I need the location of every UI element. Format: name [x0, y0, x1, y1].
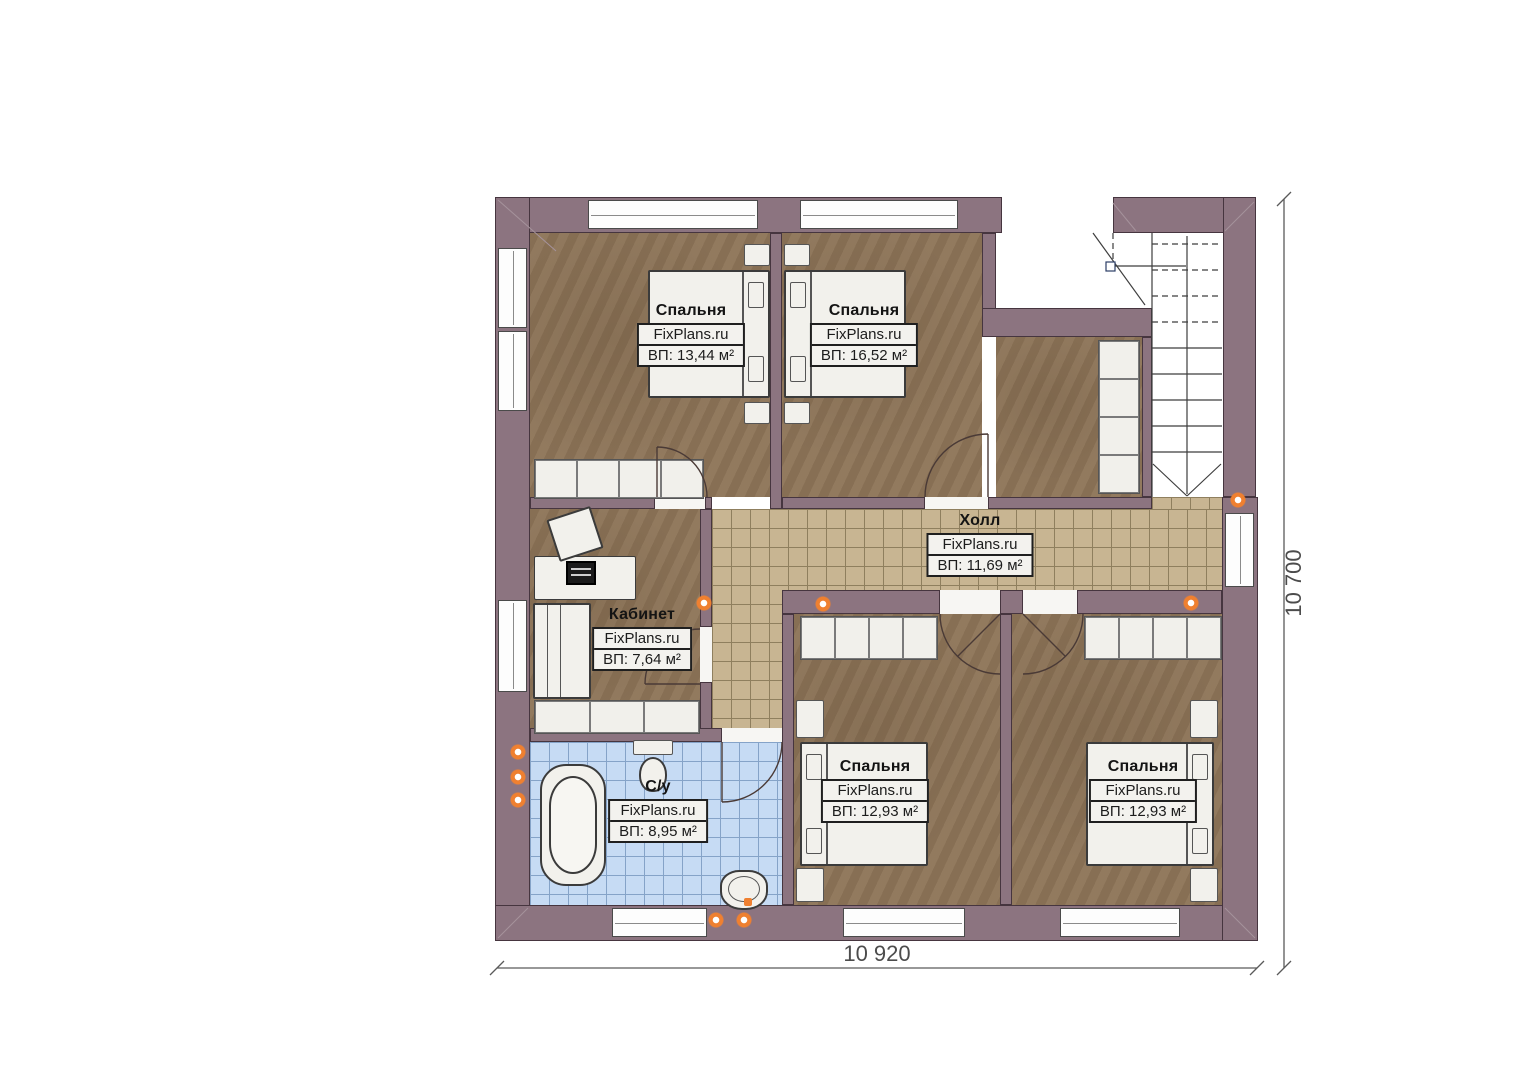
area-label: ВП: 8,95 м²	[610, 822, 706, 841]
bathtub-icon	[540, 764, 606, 886]
brand-label: FixPlans.ru	[812, 325, 916, 346]
window-left-bedroom1-a	[498, 248, 527, 328]
window-bottom-bathroom	[612, 908, 707, 937]
wall-right-stairwell	[1223, 197, 1256, 497]
nightstand	[1190, 700, 1218, 738]
service-point-icon	[744, 898, 752, 906]
wall-light-icon	[1230, 492, 1246, 508]
room-info-box: FixPlans.ru ВП: 12,93 м²	[1089, 779, 1197, 823]
pillow-icon	[748, 356, 764, 382]
shelf-office	[534, 700, 700, 734]
wall-stair-void-south	[982, 308, 1152, 337]
pillow-icon	[748, 282, 764, 308]
wall-hall-bedrooms-a	[782, 590, 940, 614]
area-label: ВП: 13,44 м²	[639, 346, 743, 365]
wall-bedroom2-south-b	[988, 497, 1152, 509]
brand-label: FixPlans.ru	[1091, 781, 1195, 802]
room-label-bedroom-bottom-left: Спальня FixPlans.ru ВП: 12,93 м²	[821, 758, 929, 823]
room-name: Кабинет	[592, 606, 692, 624]
room-label-office: Кабинет FixPlans.ru ВП: 7,64 м²	[592, 606, 692, 671]
room-info-box: FixPlans.ru ВП: 7,64 м²	[592, 627, 692, 671]
brand-label: FixPlans.ru	[594, 629, 690, 650]
wall-light-icon	[708, 912, 724, 928]
dimension-width-label: 10 920	[843, 941, 910, 967]
window-top-bedroom1	[588, 200, 758, 229]
door-opening-office	[700, 627, 712, 682]
wardrobe-bedroom2	[1098, 340, 1140, 494]
wall-bedroom1-south-b	[705, 497, 712, 509]
nightstand	[796, 868, 824, 902]
area-label: ВП: 7,64 м²	[594, 650, 690, 669]
wall-light-icon	[815, 596, 831, 612]
room-label-bedroom-top-right: Спальня FixPlans.ru ВП: 16,52 м²	[810, 302, 918, 367]
room-label-bedroom-bottom-right: Спальня FixPlans.ru ВП: 12,93 м²	[1089, 758, 1197, 823]
nightstand	[744, 402, 770, 424]
room-name: Спальня	[637, 302, 745, 320]
room-info-box: FixPlans.ru ВП: 11,69 м²	[926, 533, 1033, 577]
brand-label: FixPlans.ru	[823, 781, 927, 802]
floor-plan-canvas: Спальня FixPlans.ru ВП: 13,44 м² Спальня…	[0, 0, 1528, 1080]
floor-hall-stair-landing	[1152, 497, 1222, 509]
wall-light-icon	[510, 769, 526, 785]
computer-icon	[566, 561, 596, 585]
wall-extension-stair	[1142, 337, 1152, 497]
bathtub-basin	[549, 776, 597, 874]
wall-light-icon	[1183, 595, 1199, 611]
sofa-line	[560, 605, 561, 697]
wall-between-top-bedrooms	[770, 233, 782, 509]
room-name: Спальня	[821, 758, 929, 776]
nightstand	[796, 700, 824, 738]
room-info-box: FixPlans.ru ВП: 8,95 м²	[608, 799, 708, 843]
wall-between-bottom-bedrooms	[1000, 614, 1012, 905]
nightstand	[784, 402, 810, 424]
wall-light-icon	[696, 595, 712, 611]
pillow-icon	[1192, 828, 1208, 854]
wall-light-icon	[736, 912, 752, 928]
window-bottom-bedroom3	[843, 908, 965, 937]
room-label-bathroom: С/у FixPlans.ru ВП: 8,95 м²	[608, 778, 708, 843]
area-label: ВП: 11,69 м²	[928, 556, 1031, 575]
nightstand	[784, 244, 810, 266]
nightstand	[1190, 868, 1218, 902]
area-label: ВП: 12,93 м²	[823, 802, 927, 821]
pillow-icon	[790, 282, 806, 308]
door-opening-bedroom2	[925, 497, 988, 509]
wall-bedroom3-west	[782, 614, 794, 905]
pillow-icon	[806, 828, 822, 854]
pillow-icon	[790, 356, 806, 382]
room-name: Холл	[926, 512, 1033, 530]
wall-light-icon	[510, 792, 526, 808]
wardrobe-bedroom1	[534, 459, 704, 499]
area-label: ВП: 12,93 м²	[1091, 802, 1195, 821]
door-opening-bedroom4	[1023, 590, 1077, 614]
window-left-office	[498, 600, 527, 692]
wall-hall-bedrooms-c	[1077, 590, 1222, 614]
wall-light-icon	[510, 744, 526, 760]
room-name: Спальня	[810, 302, 918, 320]
brand-label: FixPlans.ru	[639, 325, 743, 346]
room-info-box: FixPlans.ru ВП: 13,44 м²	[637, 323, 745, 367]
window-left-bedroom1-b	[498, 331, 527, 411]
room-name: Спальня	[1089, 758, 1197, 776]
window-bottom-bedroom4	[1060, 908, 1180, 937]
nightstand	[744, 244, 770, 266]
room-info-box: FixPlans.ru ВП: 12,93 м²	[821, 779, 929, 823]
window-top-bedroom2	[800, 200, 958, 229]
brand-label: FixPlans.ru	[928, 535, 1031, 556]
brand-label: FixPlans.ru	[610, 801, 706, 822]
door-opening-bathroom	[722, 728, 782, 742]
room-name: С/у	[608, 778, 708, 796]
wardrobe-bedroom3	[800, 616, 938, 660]
door-opening-bedroom3	[940, 590, 1000, 614]
room-label-hall: Холл FixPlans.ru ВП: 11,69 м²	[926, 512, 1033, 577]
wall-bedroom2-south-a	[782, 497, 925, 509]
pillow-icon	[806, 754, 822, 780]
wardrobe-bedroom4	[1084, 616, 1222, 660]
area-label: ВП: 16,52 м²	[812, 346, 916, 365]
window-right-hall	[1225, 513, 1254, 587]
sofa-office	[533, 603, 591, 699]
floor-hall-corridor	[712, 509, 790, 742]
room-info-box: FixPlans.ru ВП: 16,52 м²	[810, 323, 918, 367]
wall-hall-bedrooms-b	[1000, 590, 1023, 614]
toilet-tank	[633, 740, 673, 755]
dimension-height-label: 10 700	[1281, 549, 1307, 616]
room-label-bedroom-top-left: Спальня FixPlans.ru ВП: 13,44 м²	[637, 302, 745, 367]
sofa-line	[547, 605, 548, 697]
